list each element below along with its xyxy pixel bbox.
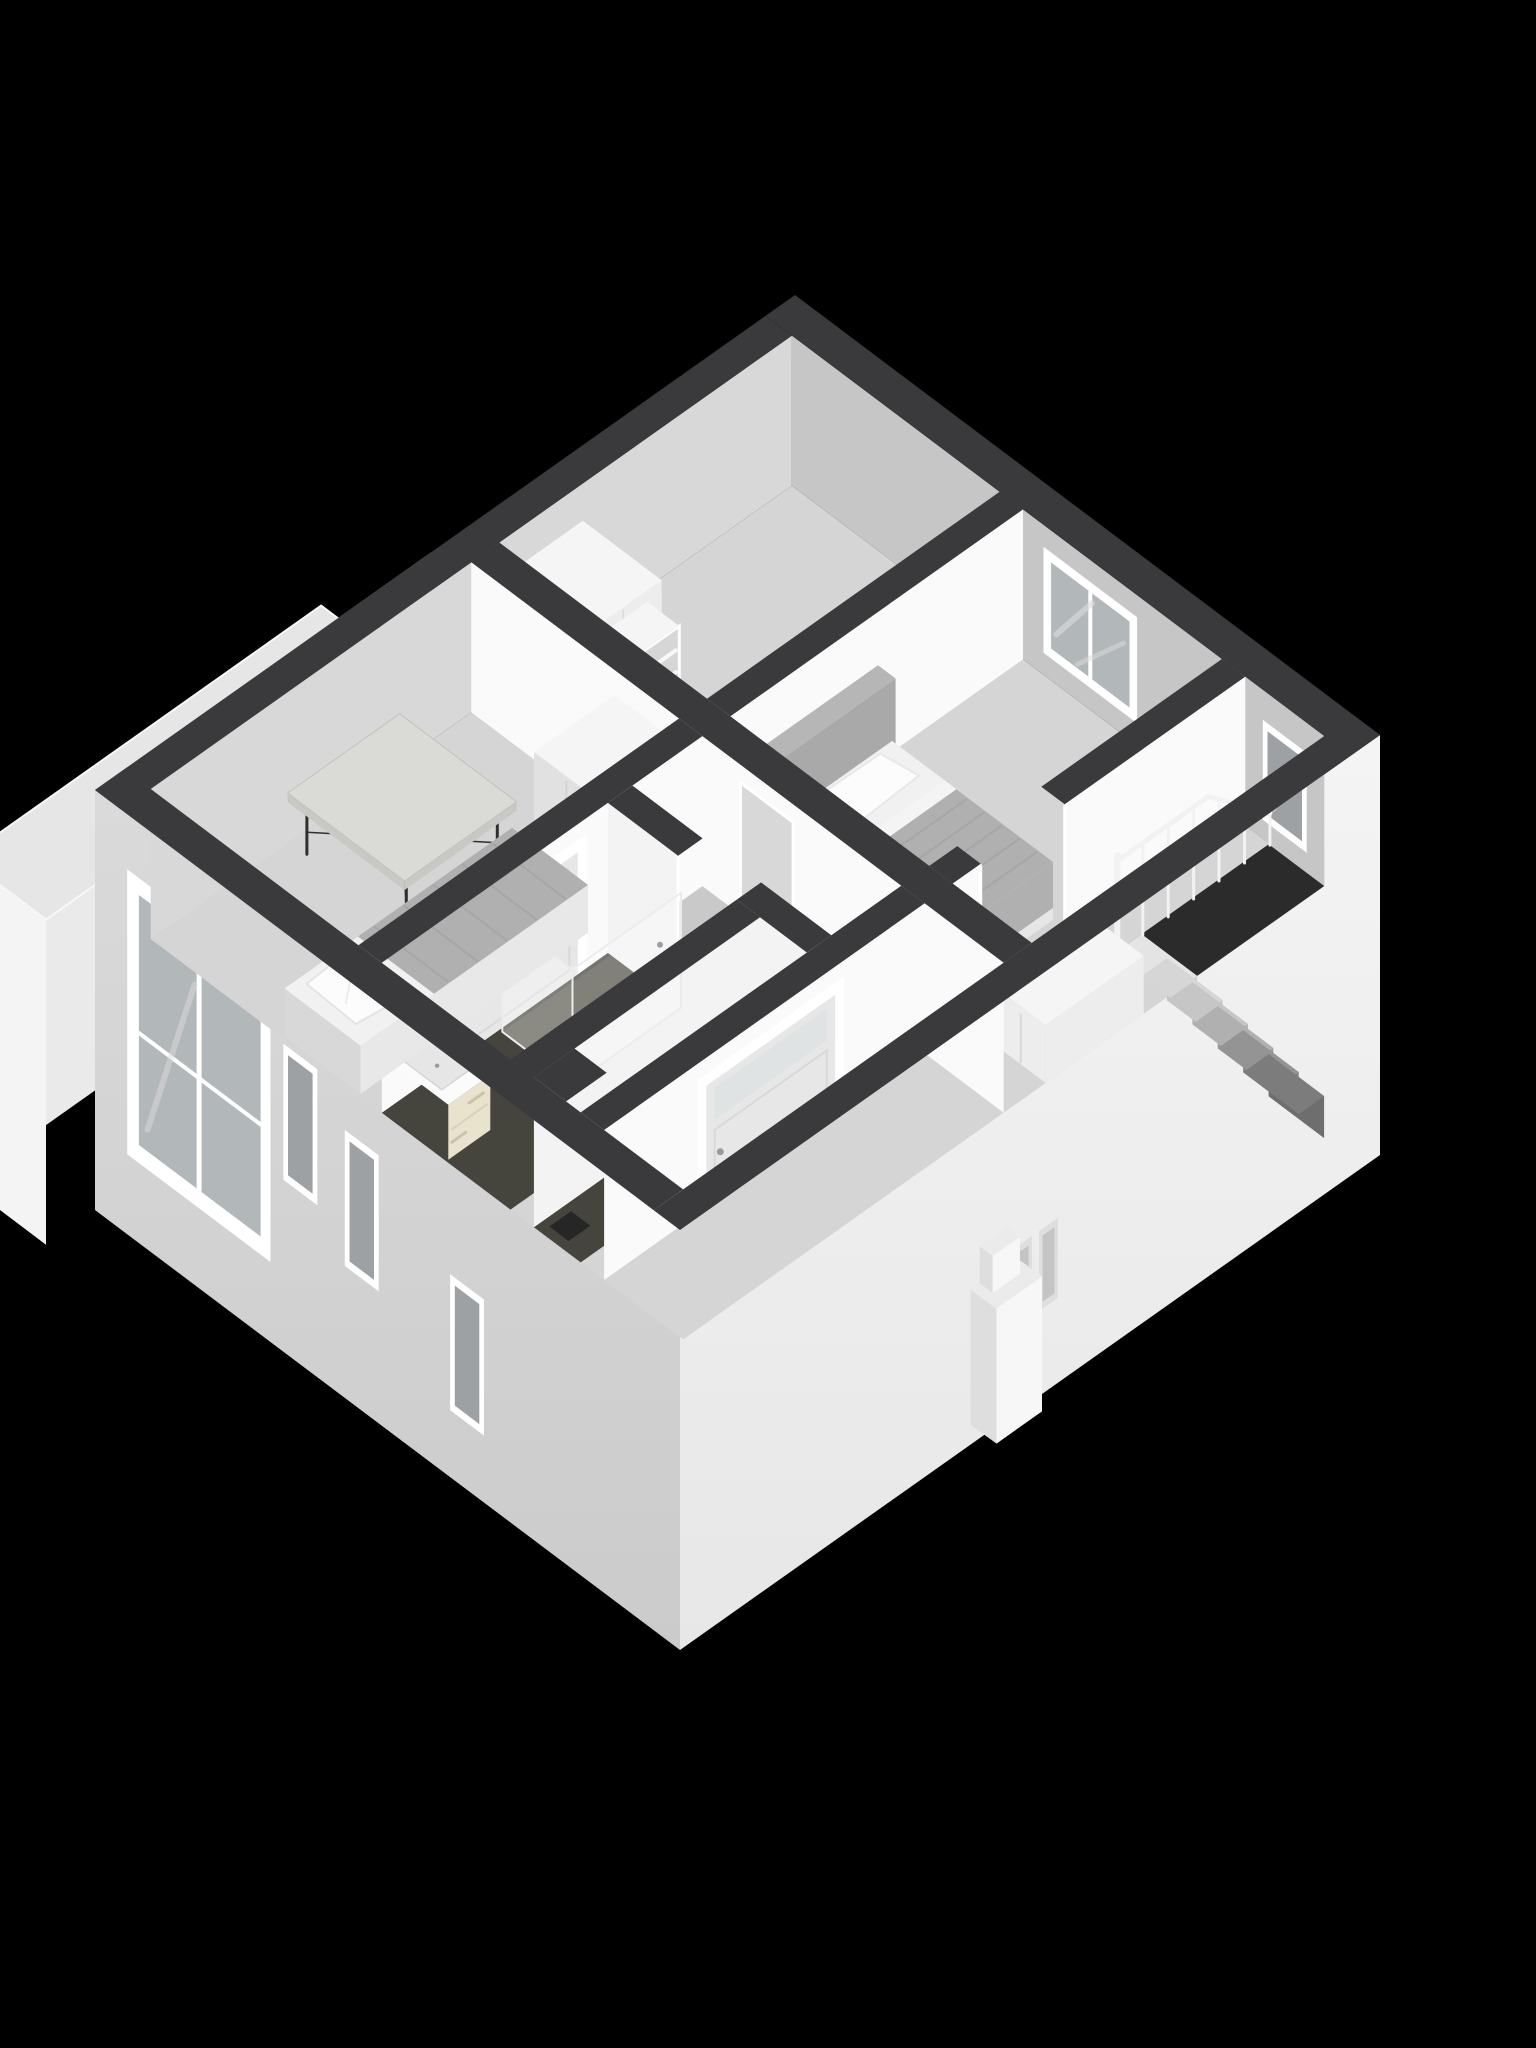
door-landing-handle [717, 1148, 724, 1155]
floorplan-3d-render [0, 0, 1536, 2048]
chimney-side [971, 1290, 997, 1444]
small-window-glass [350, 1141, 375, 1280]
small-window-glass [455, 1286, 480, 1425]
shower-fixture [657, 942, 663, 948]
basin-drain [435, 1064, 439, 1068]
annex-front-wall [0, 858, 46, 1245]
floorplan-stage [0, 0, 1536, 2048]
side-wall-slot-inner [1043, 1227, 1055, 1301]
small-window-glass [288, 1055, 313, 1194]
